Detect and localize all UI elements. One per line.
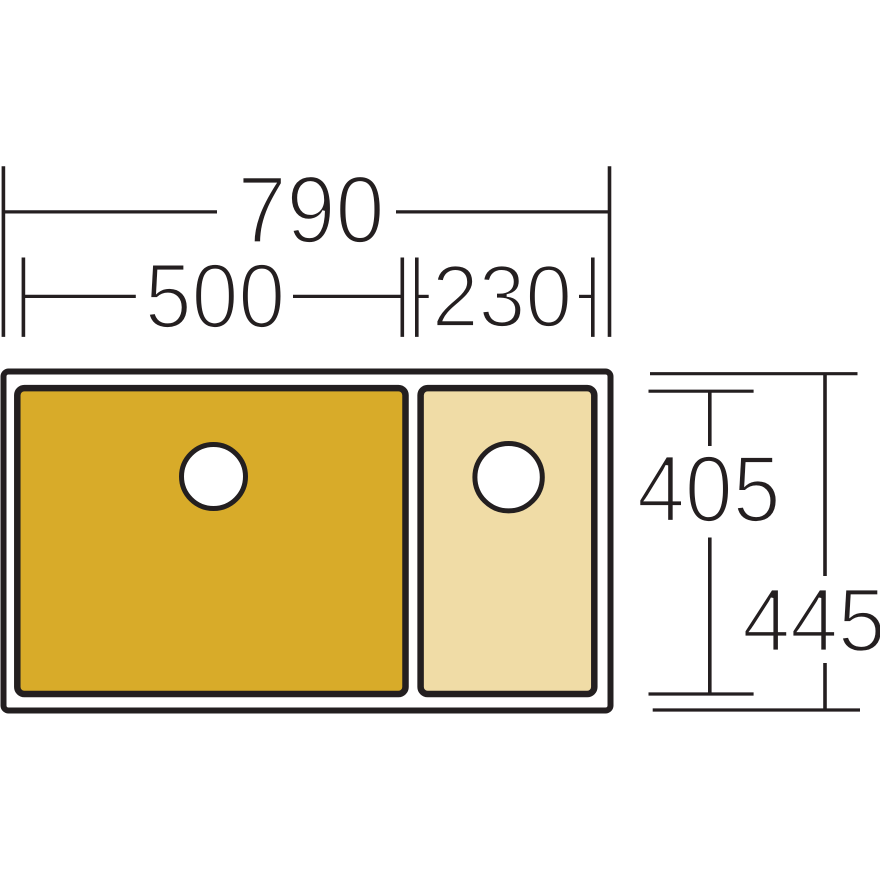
- svg-text:405: 405: [637, 437, 780, 543]
- svg-text:230: 230: [432, 248, 572, 346]
- svg-text:500: 500: [145, 244, 285, 347]
- svg-text:445: 445: [742, 569, 880, 670]
